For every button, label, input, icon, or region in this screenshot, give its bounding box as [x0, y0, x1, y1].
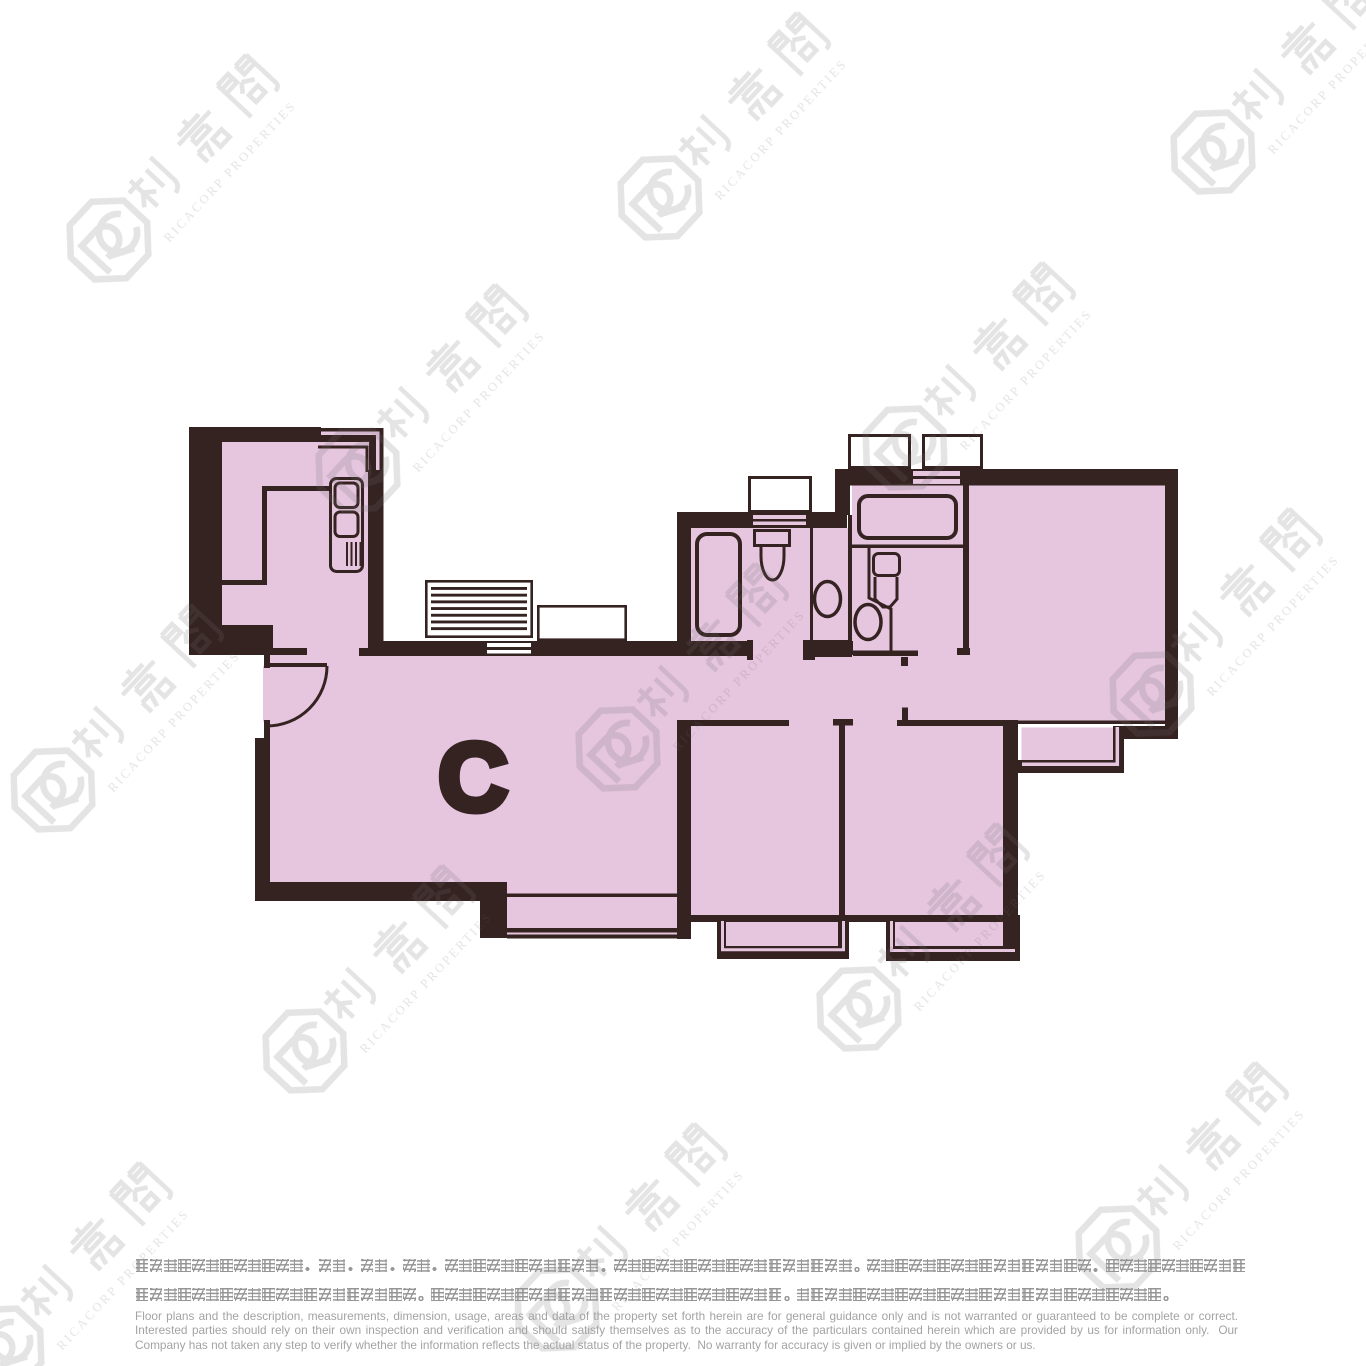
svg-text:C: C: [438, 724, 507, 831]
